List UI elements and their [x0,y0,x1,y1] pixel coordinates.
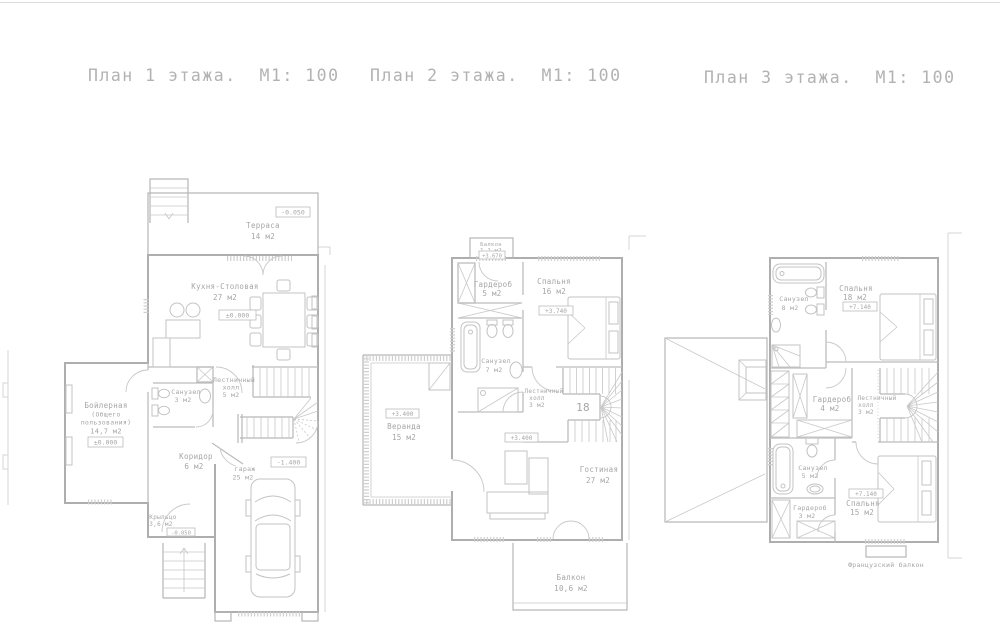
kitchen-furniture [146,296,317,367]
floor3-plan: Санузел 8 м2 Спальня 18 м2 +7.140 Гардер… [665,233,962,569]
elevation-bed3bot: +7.140 [855,491,877,498]
wardrobe4-closets [771,371,852,437]
label-balconybottom-area: 10,6 м2 [554,584,588,593]
label-wardrobe4-area: 4 м2 [820,404,839,413]
elevation-bed3top: +7.140 [849,304,871,311]
label-stairhall3-area: 3 м2 [858,409,874,416]
label-terrace-area: 14 м2 [251,232,275,241]
label-boiler-name: Бойлерная [84,401,127,410]
label-porch-name: Крыльцо [149,514,176,521]
label-stairs-steps: 18 [576,401,590,414]
label-corridor-name: Коридор [179,452,213,461]
label-garage-name: гараж [234,465,255,473]
elevation-terrace: -0.050 [281,209,305,217]
label-veranda-area: 15 м2 [392,433,416,442]
label-living-name: Гостиная [580,465,619,474]
label-bath3top-name: Санузел [779,295,809,303]
label-wardrobe2-area: 5 м2 [482,289,501,298]
elevation-porch: -0.050 [171,531,191,537]
elevation-kitchen: ±0.000 [226,312,250,320]
label-bedroom2-area: 16 м2 [542,287,566,296]
label-bath3bot-area: 5 м2 [802,472,819,480]
floor1-plan: Терраса 14 м2 -0.050 Кухня-Столовая 27 м… [3,179,330,621]
label-stairhall2-name2: холл [529,395,545,402]
label-living-area: 27 м2 [586,476,610,485]
bed-floor3-bottom [878,456,936,522]
label-boiler-name2: (Общего [91,411,121,419]
label-boiler-area: 14,7 м2 [90,428,122,436]
label-terrace-name: Терраса [246,221,280,230]
label-bathroom1-name: Санузел [171,388,201,396]
label-stairhall3-name2: холл [858,402,874,409]
room-bathroom3-top [772,264,825,367]
plans-drawing: Терраса 14 м2 -0.050 Кухня-Столовая 27 м… [0,0,1000,642]
floor-plan-sheet: План 1 этажа. М1: 100 План 2 этажа. М1: … [0,0,1000,642]
label-wardrobe3-area: 3 м2 [799,512,816,520]
label-bed3bot-area: 15 м2 [850,508,874,517]
label-wardrobe2-name: Гардероб [474,280,513,289]
label-stairhall1-area: 5 м2 [223,391,240,399]
stairs-floor3 [878,368,938,442]
label-garage-area: 25 м2 [232,474,253,482]
elevation-living: +3.400 [511,435,533,442]
stairs-floor2 [563,368,622,442]
label-porch-area: 3,6 м2 [149,521,173,528]
label-wardrobe3-name: Гардероб [793,504,827,512]
label-bed3bot-name: Спальня [846,499,880,508]
label-stairhall3-name: Лестничный [857,395,896,402]
elevation-balconytop: +3.670 [482,254,502,260]
french-balcony-rail [866,546,906,557]
label-kitchen-name: Кухня-Столовая [191,282,258,291]
room-terrace [148,179,318,259]
label-boiler-name3: пользования) [81,419,132,427]
floor2-plan: Балкон 1,1 м2 +3.670 Гардероб 5 м2 Спаль… [363,236,646,610]
label-bath3top-area: 8 м2 [782,304,799,312]
label-veranda-name: Веранда [387,422,421,431]
label-bed3top-name: Спальня [839,284,873,293]
label-bedroom2-name: Спальня [537,277,571,286]
label-corridor-area: 6 м2 [184,462,203,471]
bed-floor2 [568,297,620,359]
label-balconybottom-name: Балкон [557,573,586,582]
elevation-bedroom2: +3.740 [545,308,567,315]
label-wardrobe4-name: Гардероб [813,395,852,404]
veranda-roof [665,338,767,522]
label-bath3bot-name: Санузел [798,464,828,472]
label-kitchen-area: 27 м2 [213,293,237,302]
label-bathroom2-name: Санузел [481,357,511,365]
dining-table [250,280,318,360]
label-french-balcony: Французский балкон [848,561,924,569]
label-stairhall2-area: 3 м2 [529,402,545,409]
elevation-garage: -1.400 [277,459,301,467]
elevation-veranda: +3.400 [392,411,414,418]
garage-car [238,479,301,614]
bed-floor3-top [880,294,936,360]
label-bed3top-area: 18 м2 [843,293,867,302]
label-stairhall2-name: Лестничный [524,388,563,395]
label-bathroom1-area: 3 м2 [175,396,192,404]
elevation-boiler: ±0.000 [94,439,118,447]
living-sofa [487,451,548,519]
label-bathroom2-area: 7 м2 [486,366,503,374]
